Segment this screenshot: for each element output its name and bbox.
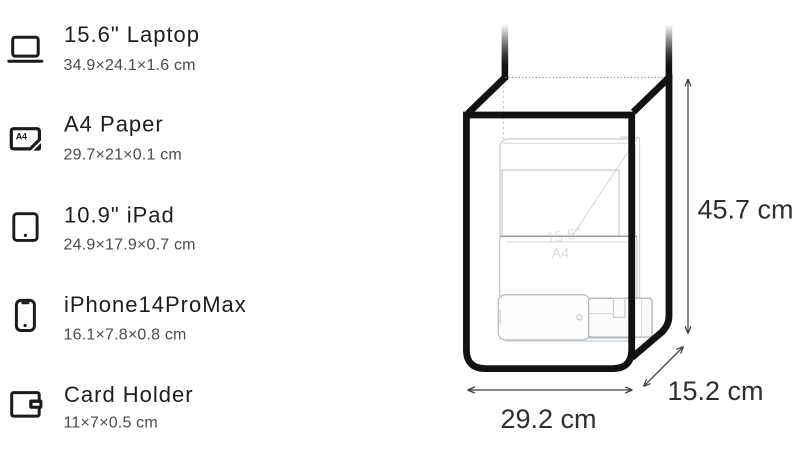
- svg-text:16.1×7.8×0.8 cm: 16.1×7.8×0.8 cm: [64, 327, 187, 344]
- svg-text:iPhone14ProMax: iPhone14ProMax: [64, 292, 247, 317]
- svg-text:29.2 cm: 29.2 cm: [500, 404, 596, 434]
- svg-text:15.2 cm: 15.2 cm: [668, 376, 764, 406]
- svg-text:A4: A4: [16, 132, 27, 142]
- svg-text:45.7 cm: 45.7 cm: [698, 195, 794, 225]
- svg-text:10.9" iPad: 10.9" iPad: [64, 203, 175, 228]
- svg-text:11×7×0.5 cm: 11×7×0.5 cm: [64, 415, 158, 432]
- svg-text:A4: A4: [552, 246, 570, 262]
- svg-text:Card Holder: Card Holder: [64, 382, 194, 407]
- svg-text:29.7×21×0.1 cm: 29.7×21×0.1 cm: [64, 147, 182, 164]
- svg-text:15.6" Laptop: 15.6" Laptop: [64, 22, 200, 47]
- svg-text:34.9×24.1×1.6 cm: 34.9×24.1×1.6 cm: [64, 57, 196, 74]
- svg-text:A4 Paper: A4 Paper: [64, 112, 164, 137]
- svg-text:24.9×17.9×0.7 cm: 24.9×17.9×0.7 cm: [64, 237, 196, 254]
